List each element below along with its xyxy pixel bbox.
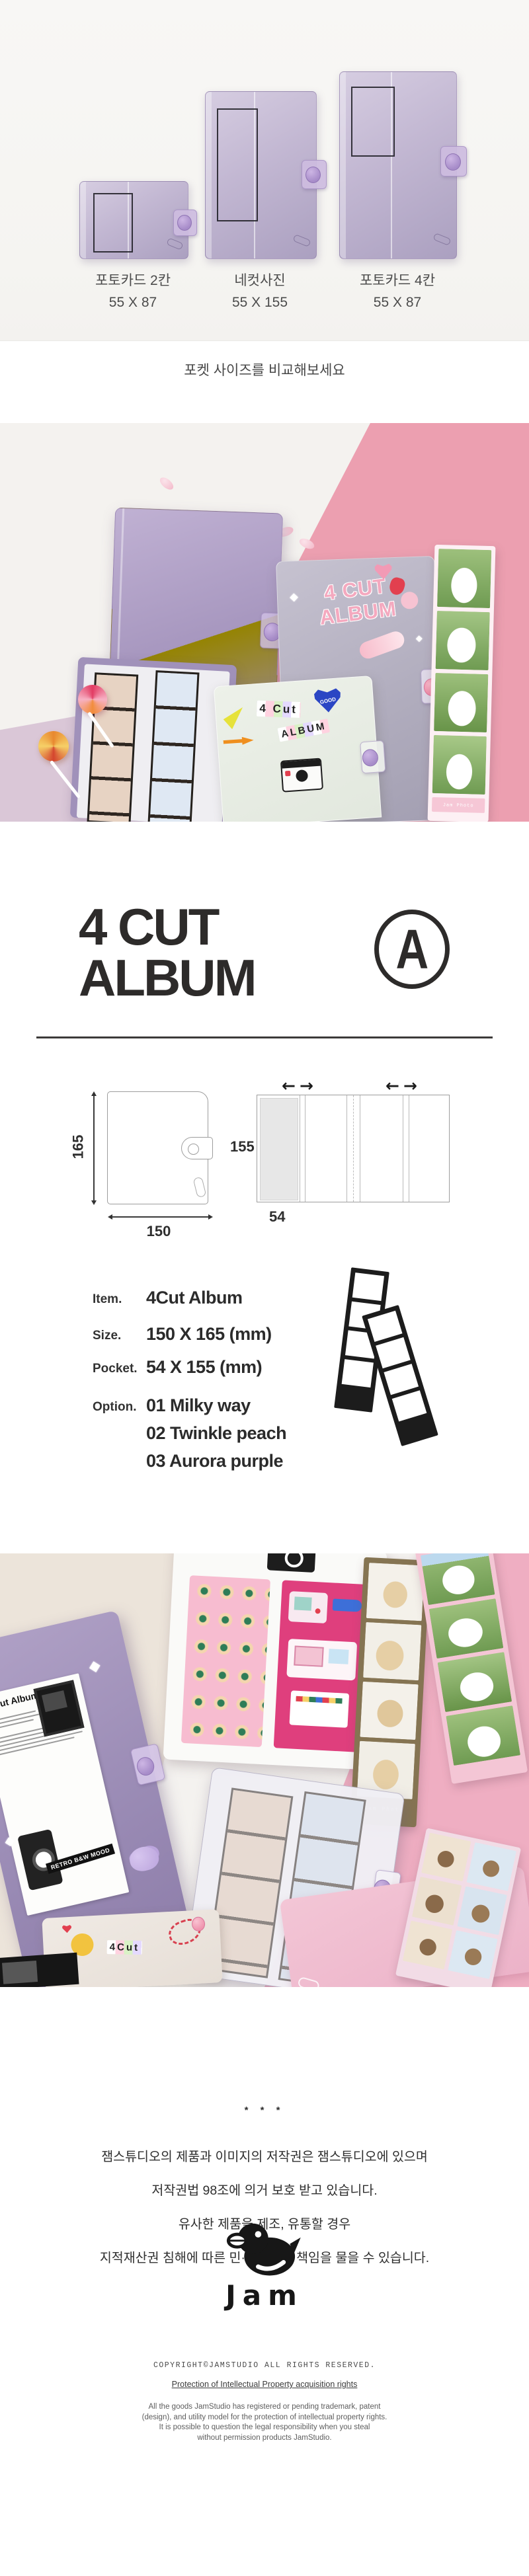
console-sticker [286,1639,357,1680]
film-cell [368,1311,403,1342]
dog-photo [457,1886,507,1935]
pocket-outline [93,193,133,253]
notice-line-1: 잼스튜디오의 제품과 이미지의 저작권은 잼스튜디오에 있으며 [0,2140,529,2174]
dog-photo [436,611,490,670]
lifestyle-photo-2: 4 Cut Album RETRO B&W MOOD [0,1553,529,1987]
compare-item-3-label: 포토카드 4칸 [325,270,470,290]
divider-line [36,1036,493,1038]
snap-button [191,1916,205,1932]
dog-photo [466,1842,516,1891]
gameboy-sticker [288,1591,328,1623]
pocket-width-label: 54 [269,1208,285,1226]
dog-photo [421,1832,471,1881]
fold-line [300,1095,300,1202]
footer-paragraph: All the goods JamStudio has registered o… [0,2402,529,2443]
dog-photo [446,1705,520,1766]
compare-item-2-size: 55 X 155 [187,295,333,311]
dog-photo [438,1652,512,1712]
rainbow-bar [296,1696,342,1704]
collage-letters-row1: 4 Cut [257,701,300,718]
bird-icon [226,2220,303,2283]
arrow-right-icon: → [403,1076,417,1095]
album-photocard-2 [79,181,188,259]
dog-photo [434,673,488,732]
yellow-arrow-sticker [224,705,249,730]
compare-caption: 포켓 사이즈를 비교해보세요 [0,360,529,379]
label-sticker [290,1690,350,1728]
spec-item-value: 4Cut Album [146,1288,243,1308]
snap-button [445,153,461,171]
good-heart-sticker: GOOD [313,687,341,713]
camera-lens [296,769,308,782]
black-photo-corner [0,1953,79,1987]
spine-line [346,1095,347,1202]
title-line-2: ALBUM [79,953,255,1003]
insert-direction-arrows-right: ←→ [386,1076,417,1095]
album-spine [340,72,346,258]
compare-item-3-size: 55 X 87 [325,295,470,311]
compare-item-1-label: 포토카드 2칸 [60,270,206,290]
cat-photo [363,1622,421,1680]
orange-arrow-sticker [223,736,254,746]
jam-bird-logo [226,2220,303,2283]
collage-text: 4 Cut [257,701,300,718]
ribbon-sticker [357,629,407,661]
insert-direction-arrows-left: ←→ [282,1076,313,1095]
gameboy-button [315,1608,320,1614]
collage-letters: 4Cut [107,1940,143,1955]
sticker-album-open [163,1553,387,1770]
jamstudio-stamp [432,233,451,246]
photo-strip-illustrated-blue [147,670,199,822]
fold-line [409,1095,409,1202]
front-width-label: 150 [0,1223,423,1240]
spec-pocket-label: Pocket. [93,1362,138,1376]
footer-line-2: (design), and utility model for the prot… [0,2413,529,2423]
petal [158,475,176,492]
film-cell [342,1359,374,1387]
arrow-down-icon [91,1200,97,1205]
cat-photo [366,1563,425,1621]
lollipop [38,731,69,761]
collage-letters-row2: ALBUM [277,719,330,742]
spec-option-2: 02 Twinkle peach [146,1423,286,1444]
snap-button [177,215,192,231]
footer-line-4: without permission products JamStudio. [0,2433,529,2444]
open-height-label: 155 [230,1138,255,1155]
photo-inner [2,1961,38,1984]
spec-option-3: 03 Aurora purple [146,1451,283,1471]
album-4cut-photo [205,91,317,259]
gameboy-screen [294,1596,312,1610]
camera-sticker [280,758,323,793]
arrow-left-icon: ← [282,1076,296,1095]
spec-option-1: 01 Milky way [146,1395,251,1416]
heart-shape [62,1925,72,1933]
badge-letter: A [395,917,428,982]
mint-album: GOOD 4 Cut ALBUM [214,676,382,822]
compare-item-2-label: 네컷사진 [187,270,333,290]
banner-sticker [333,1598,362,1612]
sparkle-icon [416,635,423,642]
film-cell [384,1364,419,1395]
film-cell [352,1272,384,1301]
text-line [0,1719,34,1729]
camera-top-bar [282,760,321,769]
spine-line [360,1095,360,1202]
jam-logo-text: Jam [0,2279,529,2312]
console-screen [294,1646,324,1667]
arrow-right-icon [208,1214,213,1220]
notice-stars: * * * [0,2105,529,2116]
lollipop [78,685,107,714]
strip-footer: Jam Photo [432,797,485,813]
cat-photo [360,1682,418,1740]
strip-footer-label: Jam Photo [443,802,474,808]
film-cell [392,1390,427,1421]
paper-insert: 4 Cut Album RETRO B&W MOOD [0,1673,129,1916]
spec-size-label: Size. [93,1329,121,1343]
camera-dot [285,771,291,777]
front-width-value: 150 [147,1223,171,1239]
jamstudio-stamp [292,234,311,247]
arrow-left-icon [108,1214,112,1220]
camera-sticker-black [267,1553,316,1573]
camera-lens [284,1553,304,1568]
pocket-outline [351,87,395,157]
dog-photo [437,549,491,608]
open-album [70,657,237,822]
dog-photo-strip: Jam Photo [428,545,496,822]
page-title: 4 CUT ALBUM [79,902,255,1003]
film-cell [376,1337,411,1368]
collage-text: 4Cut [107,1940,143,1955]
cat-photo-strip: Jam Photo [350,1557,430,1828]
option-a-badge: A [374,910,450,989]
center-dashed-line [353,1095,354,1202]
snap-button [305,167,321,183]
dog-photo [421,1553,495,1605]
arrow-up-icon [91,1091,97,1096]
compare-photo: 포토카드 2칸 55 X 87 네컷사진 55 X 155 포토카드 4칸 55… [0,0,529,341]
ip-protection-link[interactable]: Protection of Intellectual Property acqu… [172,2380,358,2389]
heart-sticker [374,563,392,580]
footer-link-row: Protection of Intellectual Property acqu… [0,2378,529,2390]
sparkle-icon [89,1661,101,1672]
lifestyle-photo-1: 4 CUT ALBUM GOOD [0,423,529,822]
heart-shape [374,563,392,580]
heart-label: GOOD [319,696,337,705]
footer-copyright: COPYRIGHT©JAMSTUDIO ALL RIGHTS RESERVED. [0,2361,529,2370]
dog-photo [412,1877,462,1926]
spec-option-label: Option. [93,1400,136,1415]
front-height-label: 165 [69,1135,87,1159]
dog-photo [448,1930,497,1979]
snap-hole-outline [188,1144,199,1155]
console-panel [328,1649,348,1664]
width-dimension-line [110,1216,210,1218]
spec-size-value: 150 X 165 (mm) [146,1324,272,1345]
heart-sticker [62,1925,72,1933]
dog-photo [432,735,487,795]
fold-line [305,1095,305,1202]
heart-shape: GOOD [313,687,341,713]
album-spine [80,182,86,258]
arrow-left-icon: ← [386,1076,399,1095]
spec-pocket-value: 54 X 155 (mm) [146,1357,262,1378]
collage-text: ALBUM [277,719,330,742]
pocket-shaded [260,1098,298,1200]
height-dimension-line [93,1093,95,1203]
footer-line-3: It is possible to question the legal res… [0,2423,529,2433]
footer-line-1: All the goods JamStudio has registered o… [0,2402,529,2413]
album-photocard-4 [339,71,457,259]
album-spine [206,92,212,258]
jamstudio-stamp [166,237,183,250]
polaroid-image [42,1690,67,1712]
album-open-outline [257,1095,450,1202]
face-sticker-grid [181,1575,270,1747]
fold-line [403,1095,403,1202]
compare-item-1-size: 55 X 87 [60,295,206,311]
sticker-sheet-pink [181,1575,270,1747]
arrow-right-icon: → [300,1076,313,1095]
product-detail-page: 포토카드 2칸 55 X 87 네컷사진 55 X 155 포토카드 4칸 55… [0,0,529,2576]
dog-photo [429,1598,504,1659]
spec-item-label: Item. [93,1292,122,1307]
pocket-outline [217,108,258,221]
jamstudio-stamp [297,1976,320,1987]
title-line-1: 4 CUT [79,902,255,953]
notice-line-2: 저작권법 98조에 의거 보호 받고 있습니다. [0,2174,529,2208]
dog-photo [403,1920,452,1969]
